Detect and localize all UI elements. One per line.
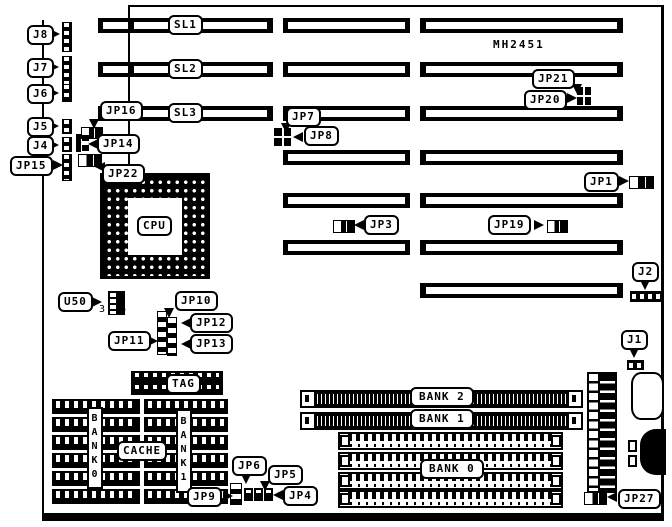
motherboard-diagram: SL1 SL2 SL3 MH2451 CPU 3 6 BANK0 xyxy=(0,0,672,527)
jumper-strip-jp12-jp13 xyxy=(167,317,177,356)
callout-jp14: JP14 xyxy=(97,134,140,154)
isa-slot-bar xyxy=(283,18,410,33)
callout-jp5: JP5 xyxy=(268,465,303,485)
connector-j4 xyxy=(62,137,72,152)
isa-slot-bar xyxy=(283,240,410,255)
connector-j6 xyxy=(62,84,72,102)
power-connector-body xyxy=(600,374,615,491)
callout-pointer xyxy=(534,220,544,230)
simm-clip xyxy=(567,390,583,408)
callout-jp6: JP6 xyxy=(232,456,267,476)
callout-jp1: JP1 xyxy=(584,172,619,192)
callout-j2: J2 xyxy=(632,262,659,282)
label-cache-bank1: BANK1 xyxy=(176,409,192,493)
label-sl1: SL1 xyxy=(168,15,203,35)
callout-tag: TAG xyxy=(166,374,201,394)
board-model: MH2451 xyxy=(493,38,545,51)
callout-jp13: JP13 xyxy=(190,334,233,354)
cache-chip xyxy=(52,489,140,504)
callout-jp27: JP27 xyxy=(618,489,661,509)
keyboard-connector-pin xyxy=(628,440,637,452)
callout-jp22: JP22 xyxy=(102,164,145,184)
callout-jp9: JP9 xyxy=(187,487,222,507)
callout-j8: J8 xyxy=(27,25,54,45)
connector-j2 xyxy=(630,291,663,302)
callout-pointer xyxy=(354,220,364,230)
callout-pointer xyxy=(92,297,102,307)
callout-pointer xyxy=(273,490,283,500)
keyboard-din-connector xyxy=(640,429,666,475)
connector-jp15 xyxy=(62,154,72,181)
label-bank1: BANK 1 xyxy=(410,409,474,429)
callout-pointer xyxy=(223,491,233,501)
label-sl3: SL3 xyxy=(168,103,203,123)
isa-slot-bar xyxy=(420,193,623,208)
callout-jp21: JP21 xyxy=(532,69,575,89)
power-connector xyxy=(587,372,617,493)
callout-jp4: JP4 xyxy=(283,486,318,506)
callout-pointer xyxy=(293,132,303,142)
callout-jp8: JP8 xyxy=(304,126,339,146)
callout-jp20: JP20 xyxy=(524,90,567,110)
jumper-jp27 xyxy=(584,492,607,505)
simm-socket-bank0 xyxy=(338,490,563,508)
label-bank0: BANK 0 xyxy=(420,459,484,479)
callout-jp11: JP11 xyxy=(108,331,151,351)
callout-pointer xyxy=(567,93,577,103)
isa-slot-bar xyxy=(420,18,623,33)
connector-j1 xyxy=(627,360,644,370)
callout-pointer xyxy=(164,308,174,318)
connector-j8 xyxy=(62,22,72,52)
callout-j1: J1 xyxy=(621,330,648,350)
power-connector-pins xyxy=(589,374,600,491)
simm-clip xyxy=(300,390,316,408)
isa-slot-bar xyxy=(420,283,623,298)
battery xyxy=(631,372,664,420)
callout-jp3: JP3 xyxy=(364,215,399,235)
callout-jp12: JP12 xyxy=(190,313,233,333)
callout-jp16: JP16 xyxy=(100,101,143,121)
callout-jp7: JP7 xyxy=(286,107,321,127)
isa-slot-bar xyxy=(283,62,410,77)
jumper-jp1 xyxy=(629,176,654,189)
callout-pointer xyxy=(53,160,63,170)
callout-cache: CACHE xyxy=(117,441,167,461)
isa-slot-bar xyxy=(420,240,623,255)
callout-jp19: JP19 xyxy=(488,215,531,235)
callout-pointer xyxy=(619,176,629,186)
callout-pointer xyxy=(607,492,617,502)
jumper-jp19 xyxy=(547,220,568,233)
simm-clip xyxy=(300,412,316,430)
callout-u50: U50 xyxy=(58,292,93,312)
callout-j5: J5 xyxy=(27,117,54,137)
isa-slot-bar xyxy=(420,106,623,121)
label-cpu: CPU xyxy=(137,216,172,236)
board-edge-top xyxy=(129,5,663,7)
simm-clip xyxy=(567,412,583,430)
label-sl2: SL2 xyxy=(168,59,203,79)
callout-pointer xyxy=(89,119,99,129)
isa-slot-bar xyxy=(283,193,410,208)
simm-socket-bank0 xyxy=(338,432,563,450)
callout-jp15: JP15 xyxy=(10,156,53,176)
callout-jp10: JP10 xyxy=(175,291,218,311)
label-cache-bank0: BANK0 xyxy=(87,407,103,489)
keyboard-connector-pin xyxy=(628,455,637,467)
callout-j4: J4 xyxy=(27,136,54,156)
jumper-jp6-block xyxy=(244,488,253,501)
callout-j7: J7 xyxy=(27,58,54,78)
label-bank2: BANK 2 xyxy=(410,387,474,407)
board-edge-bottom xyxy=(42,513,664,521)
callout-j6: J6 xyxy=(27,84,54,104)
u50-pin6-number: 6 xyxy=(120,304,126,315)
isa-slot-bar xyxy=(420,62,623,77)
jumper-jp3 xyxy=(333,220,355,233)
isa-slot-bar xyxy=(283,150,410,165)
connector-j5 xyxy=(62,119,72,134)
isa-slot-bar xyxy=(420,150,623,165)
